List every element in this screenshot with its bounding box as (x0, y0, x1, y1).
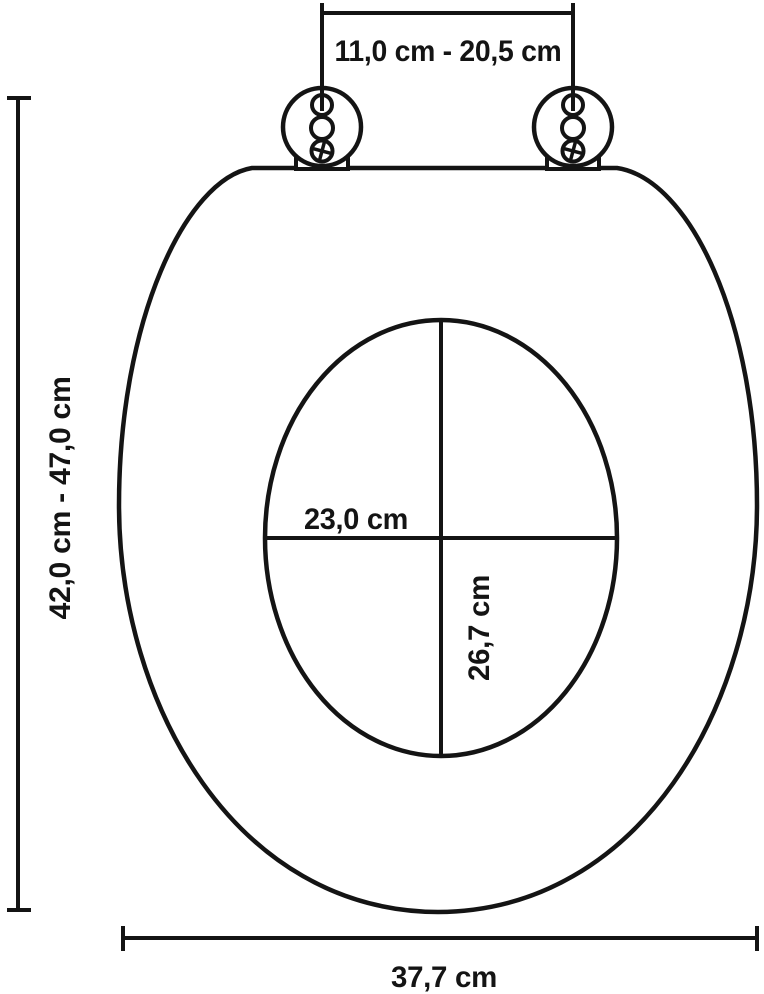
label-overall-width: 37,7 cm (391, 961, 497, 994)
label-inner-depth: 26,7 cm (463, 575, 496, 681)
screw-hole-icon (562, 117, 584, 139)
dimension-overall-width (123, 926, 757, 951)
label-overall-length: 42,0 cm - 47,0 cm (44, 377, 77, 620)
screw-hole-icon (311, 117, 333, 139)
toilet-seat-dimension-diagram: 11,0 cm - 20,5 cm 42,0 cm - 47,0 cm 23,0… (0, 0, 764, 994)
label-hinge-spacing: 11,0 cm - 20,5 cm (335, 35, 562, 68)
diagram-canvas: 11,0 cm - 20,5 cm 42,0 cm - 47,0 cm 23,0… (0, 0, 764, 994)
label-inner-width: 23,0 cm (304, 503, 408, 536)
dimension-overall-length (7, 98, 31, 910)
